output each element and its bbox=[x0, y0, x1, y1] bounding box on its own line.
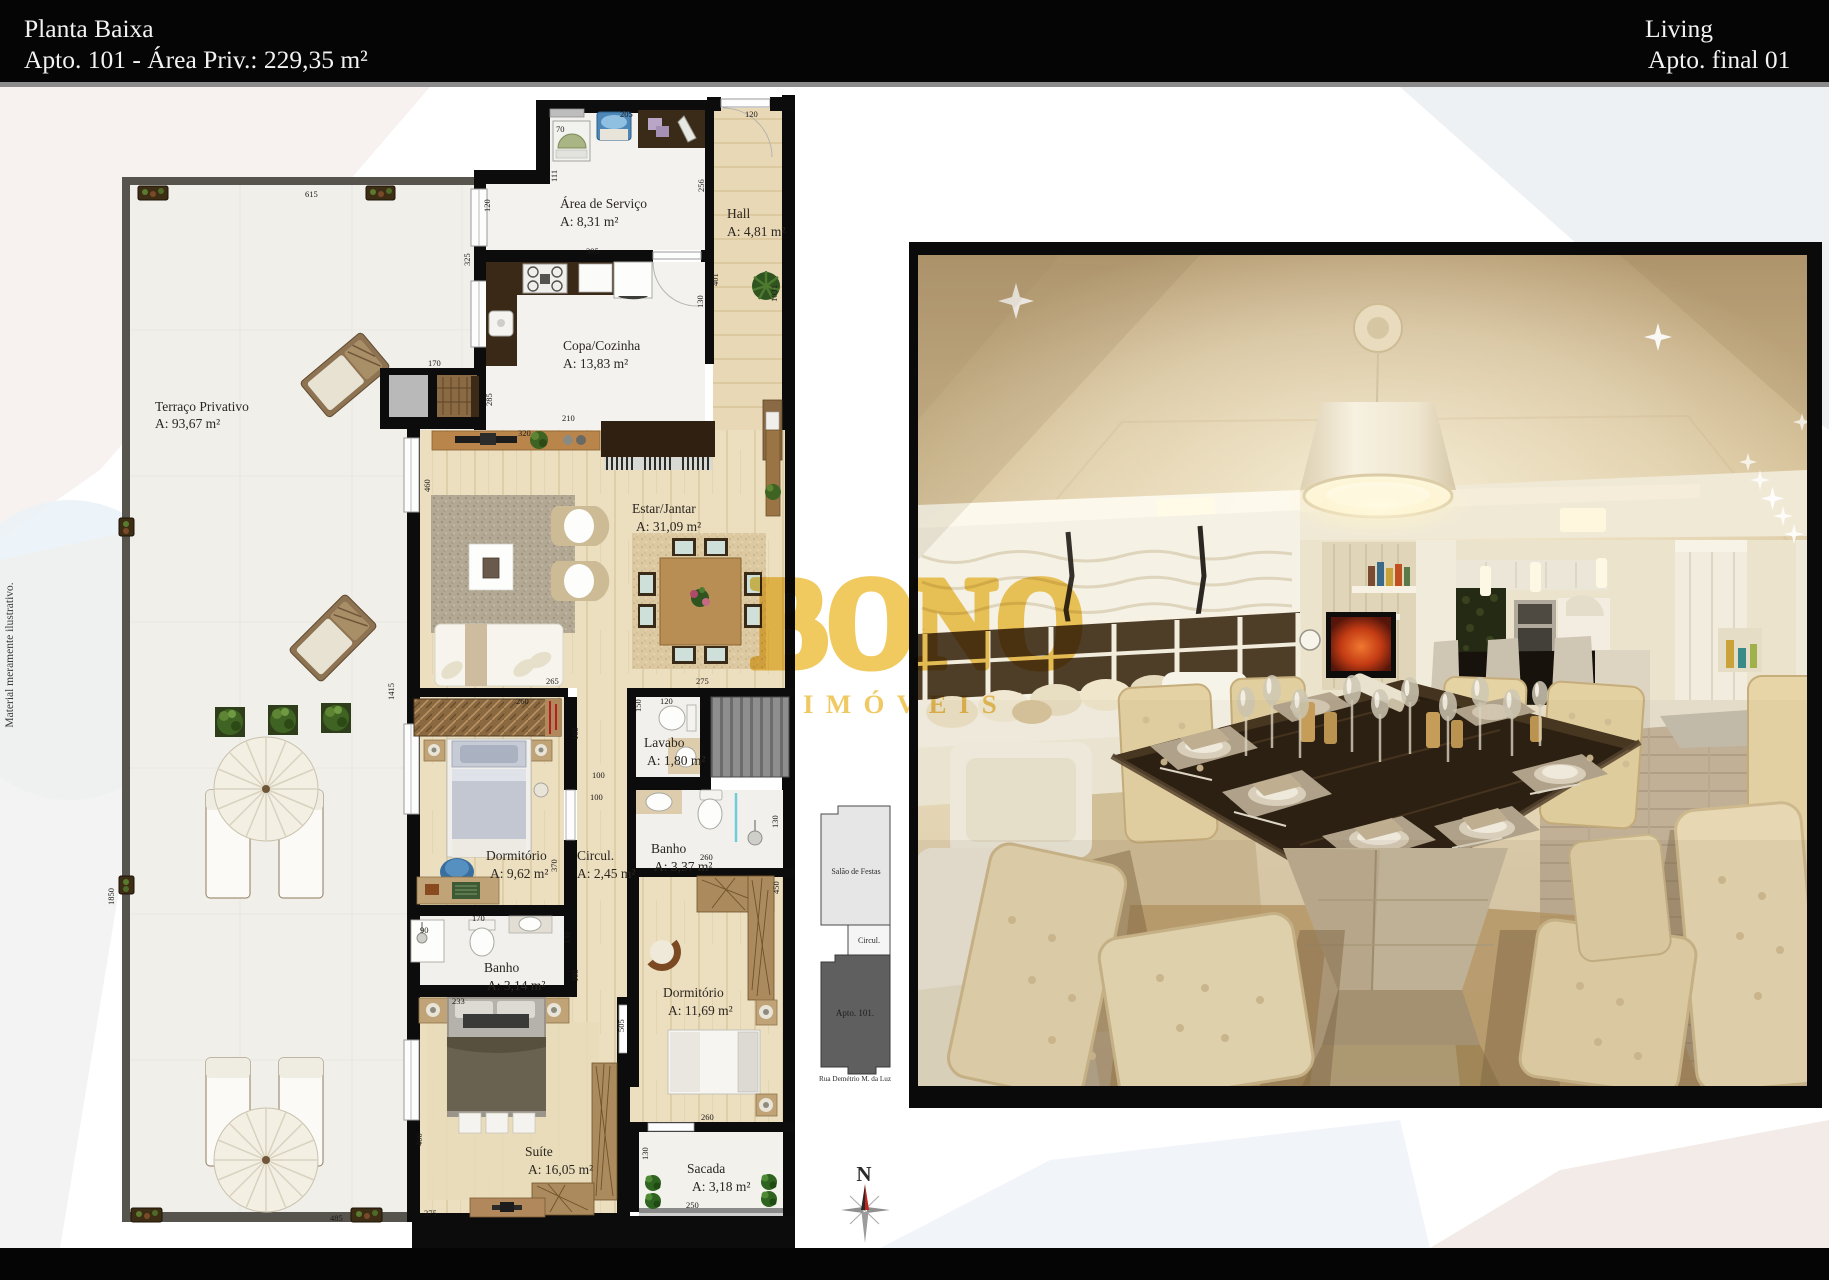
svg-text:Banho: Banho bbox=[484, 960, 519, 975]
svg-text:Material meramente ilustrativo: Material meramente ilustrativo. bbox=[4, 582, 16, 727]
svg-text:A: 4,81 m²: A: 4,81 m² bbox=[727, 224, 785, 239]
svg-text:401: 401 bbox=[710, 273, 720, 286]
svg-text:70: 70 bbox=[556, 124, 565, 134]
svg-text:130: 130 bbox=[562, 931, 572, 944]
svg-text:1850: 1850 bbox=[106, 888, 116, 905]
svg-text:Estar/Jantar: Estar/Jantar bbox=[632, 501, 696, 516]
svg-text:100: 100 bbox=[590, 792, 603, 802]
svg-text:505: 505 bbox=[616, 1019, 626, 1032]
svg-text:460: 460 bbox=[422, 479, 432, 492]
svg-text:325: 325 bbox=[462, 253, 472, 266]
svg-text:320: 320 bbox=[518, 428, 531, 438]
svg-text:N: N bbox=[856, 1162, 871, 1186]
svg-text:105: 105 bbox=[570, 969, 580, 982]
svg-text:250: 250 bbox=[686, 1200, 699, 1210]
svg-text:1415: 1415 bbox=[386, 683, 396, 700]
svg-text:130: 130 bbox=[640, 1147, 650, 1160]
svg-text:Dormitório: Dormitório bbox=[486, 848, 547, 863]
svg-text:260: 260 bbox=[700, 852, 713, 862]
svg-text:Sacada: Sacada bbox=[687, 1161, 725, 1176]
svg-text:Lavabo: Lavabo bbox=[644, 735, 685, 750]
svg-text:Copa/Cozinha: Copa/Cozinha bbox=[563, 338, 640, 353]
svg-text:1031: 1031 bbox=[769, 285, 779, 302]
svg-text:375: 375 bbox=[424, 1208, 437, 1218]
svg-text:120: 120 bbox=[745, 109, 758, 119]
svg-text:130: 130 bbox=[770, 815, 780, 828]
svg-text:260: 260 bbox=[516, 696, 529, 706]
svg-text:120: 120 bbox=[482, 199, 492, 212]
svg-text:100: 100 bbox=[592, 770, 605, 780]
svg-text:A: 16,05 m²: A: 16,05 m² bbox=[528, 1162, 593, 1177]
svg-text:395: 395 bbox=[586, 246, 599, 256]
svg-text:A: 31,09 m²: A: 31,09 m² bbox=[636, 519, 701, 534]
svg-text:Banho: Banho bbox=[651, 841, 686, 856]
svg-text:A: 3,14 m²: A: 3,14 m² bbox=[487, 978, 545, 993]
svg-text:170: 170 bbox=[428, 358, 441, 368]
svg-text:450: 450 bbox=[771, 881, 781, 894]
svg-text:IMÓVEIS: IMÓVEIS bbox=[803, 690, 1009, 719]
svg-text:Apto. final 01: Apto. final 01 bbox=[1648, 45, 1790, 74]
svg-text:Apto. 101 - Área Priv.: 229,35: Apto. 101 - Área Priv.: 229,35 m² bbox=[24, 45, 368, 74]
svg-text:260: 260 bbox=[701, 1112, 714, 1122]
svg-text:165: 165 bbox=[570, 727, 580, 740]
svg-text:Salão de Festas: Salão de Festas bbox=[831, 867, 880, 876]
svg-text:A: 3,18 m²: A: 3,18 m² bbox=[692, 1179, 750, 1194]
svg-text:Apto. 101.: Apto. 101. bbox=[836, 1008, 874, 1018]
svg-text:Terraço Privativo: Terraço Privativo bbox=[155, 399, 249, 414]
svg-text:A: 93,67 m²: A: 93,67 m² bbox=[155, 416, 220, 431]
svg-text:370: 370 bbox=[549, 859, 559, 872]
svg-text:210: 210 bbox=[562, 413, 575, 423]
svg-text:150: 150 bbox=[633, 699, 643, 712]
svg-text:Circul.: Circul. bbox=[577, 848, 614, 863]
svg-text:615: 615 bbox=[305, 189, 318, 199]
svg-text:A: 13,83 m²: A: 13,83 m² bbox=[563, 356, 628, 371]
svg-text:90: 90 bbox=[420, 925, 429, 935]
svg-text:285: 285 bbox=[484, 393, 494, 406]
svg-text:Hall: Hall bbox=[727, 206, 750, 221]
svg-text:265: 265 bbox=[546, 676, 559, 686]
svg-text:BONO: BONO bbox=[752, 552, 1084, 694]
svg-text:170: 170 bbox=[472, 913, 485, 923]
svg-text:205: 205 bbox=[620, 109, 633, 119]
svg-text:275: 275 bbox=[696, 676, 709, 686]
svg-text:Área de Serviço: Área de Serviço bbox=[560, 196, 647, 211]
svg-text:130: 130 bbox=[695, 295, 705, 308]
svg-text:A: 1,80 m²: A: 1,80 m² bbox=[647, 753, 705, 768]
svg-text:Rua Demétrio M. da Luz: Rua Demétrio M. da Luz bbox=[819, 1075, 891, 1083]
svg-text:Circul.: Circul. bbox=[858, 936, 880, 945]
svg-text:Planta Baixa: Planta Baixa bbox=[24, 14, 154, 43]
svg-text:111: 111 bbox=[549, 170, 559, 182]
svg-text:Suíte: Suíte bbox=[525, 1144, 553, 1159]
svg-text:A: 11,69 m²: A: 11,69 m² bbox=[668, 1003, 733, 1018]
svg-text:A: 8,31 m²: A: 8,31 m² bbox=[560, 214, 618, 229]
svg-text:Living: Living bbox=[1645, 14, 1713, 43]
svg-text:400: 400 bbox=[414, 1133, 424, 1146]
svg-text:485: 485 bbox=[330, 1213, 343, 1223]
svg-text:A: 2,45 m²: A: 2,45 m² bbox=[577, 866, 635, 881]
svg-text:256: 256 bbox=[696, 179, 706, 192]
svg-text:233: 233 bbox=[452, 996, 465, 1006]
svg-text:120: 120 bbox=[660, 696, 673, 706]
svg-text:A: 9,62 m²: A: 9,62 m² bbox=[490, 866, 548, 881]
svg-text:Dormitório: Dormitório bbox=[663, 985, 724, 1000]
